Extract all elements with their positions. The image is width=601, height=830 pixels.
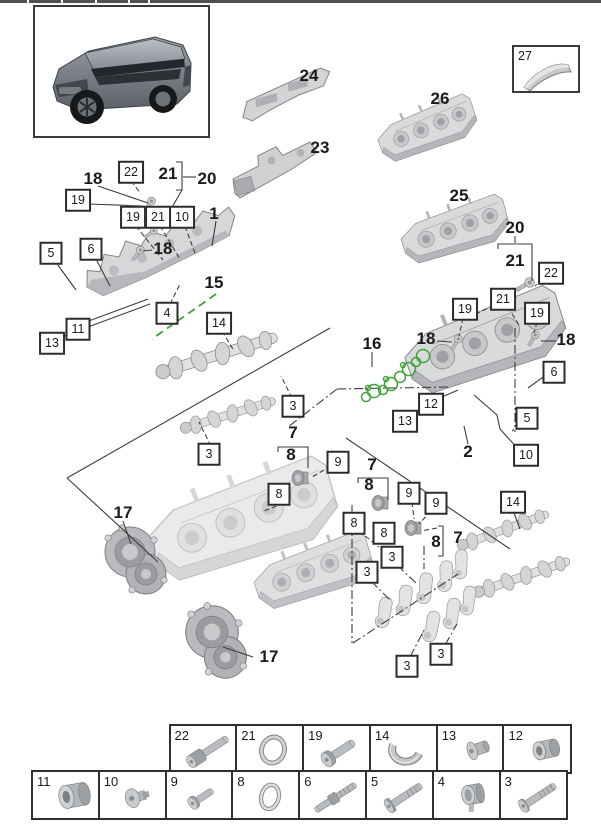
callout-box-5[interactable]: 5	[40, 242, 63, 265]
callout-24[interactable]: 24	[300, 66, 319, 86]
callout-18[interactable]: 18	[417, 329, 436, 349]
callout-box-19[interactable]: 19	[120, 206, 146, 229]
callout-box-3[interactable]: 3	[381, 546, 404, 569]
legend-cell-8[interactable]: 8	[231, 770, 300, 820]
callout-7[interactable]: 7	[288, 423, 297, 443]
parts-legend-row-2: 11 10 9	[31, 770, 565, 820]
callout-box-9[interactable]: 9	[327, 451, 350, 474]
long-bolt-icon	[375, 775, 431, 817]
callout-box-22[interactable]: 22	[538, 262, 564, 285]
callout-box-13[interactable]: 13	[39, 332, 65, 355]
callout-box-22[interactable]: 22	[118, 161, 144, 184]
illustration-camshaft-right-2	[470, 551, 573, 603]
socket-bolt-icon	[179, 729, 235, 771]
illustration-bracket-23	[226, 137, 323, 199]
callout-box-10[interactable]: 10	[513, 444, 539, 467]
sealant-highlights	[152, 294, 430, 402]
sealing-cap-icon	[442, 775, 498, 817]
callout-20[interactable]: 20	[198, 169, 217, 189]
parts-legend-row-1: 22 21 19	[169, 724, 570, 774]
illustration-bearing-1	[292, 471, 308, 486]
illustration-cover-17-lower	[180, 600, 255, 681]
legend-cell-21[interactable]: 21	[235, 724, 304, 774]
callout-26[interactable]: 26	[431, 89, 450, 109]
callout-15[interactable]: 15	[205, 273, 224, 293]
callout-box-21[interactable]: 21	[145, 206, 171, 229]
callout-box-5[interactable]: 5	[516, 407, 539, 430]
callout-17[interactable]: 17	[260, 647, 279, 667]
callout-8[interactable]: 8	[364, 475, 373, 495]
callout-box-12[interactable]: 12	[418, 393, 444, 416]
callout-18[interactable]: 18	[154, 239, 173, 259]
callout-box-3[interactable]: 3	[356, 561, 379, 584]
sealing-plug-icon	[446, 729, 502, 771]
illustration-cam-housing-26	[371, 89, 481, 164]
callout-box-8[interactable]: 8	[343, 512, 366, 535]
legend-cell-12[interactable]: 12	[502, 724, 571, 774]
callout-8[interactable]: 8	[286, 445, 295, 465]
callout-box-11[interactable]: 11	[66, 318, 91, 341]
legend-cell-22[interactable]: 22	[169, 724, 238, 774]
illustration-bearing-3	[405, 521, 421, 536]
illustration-cover-strip-24	[236, 66, 337, 123]
callout-box-19[interactable]: 19	[524, 302, 550, 325]
legend-cell-19[interactable]: 19	[302, 724, 371, 774]
legend-cell-13[interactable]: 13	[436, 724, 505, 774]
callout-7[interactable]: 7	[453, 528, 462, 548]
callout-18[interactable]: 18	[84, 169, 103, 189]
callout-box-3[interactable]: 3	[282, 395, 305, 418]
long-screw-icon	[509, 775, 565, 817]
callout-box-9[interactable]: 9	[398, 482, 421, 505]
callout-box-3[interactable]: 3	[198, 443, 221, 466]
illustration-bearing-2	[372, 496, 388, 511]
short-screw-icon	[175, 775, 231, 817]
callout-18[interactable]: 18	[557, 330, 576, 350]
callout-box-3[interactable]: 3	[430, 643, 453, 666]
o-ring-small-icon	[242, 775, 298, 817]
legend-cell-14[interactable]: 14	[369, 724, 438, 774]
closure-sleeve-icon	[513, 729, 569, 771]
inset-part-box-27[interactable]: 27	[512, 45, 580, 93]
callout-box-14[interactable]: 14	[500, 491, 526, 514]
pan-screw-icon	[312, 729, 368, 771]
callout-box-8[interactable]: 8	[373, 522, 396, 545]
callout-box-6[interactable]: 6	[80, 238, 103, 261]
callout-box-21[interactable]: 21	[490, 288, 516, 311]
callout-25[interactable]: 25	[450, 186, 469, 206]
callout-23[interactable]: 23	[311, 138, 330, 158]
callout-box-4[interactable]: 4	[156, 302, 179, 325]
half-moon-strip-icon	[516, 51, 578, 93]
legend-cell-6[interactable]: 6	[298, 770, 367, 820]
illustration-camshaft-left-2	[178, 391, 279, 439]
callout-box-6[interactable]: 6	[543, 361, 566, 384]
callout-1[interactable]: 1	[209, 204, 218, 224]
callout-box-8[interactable]: 8	[268, 483, 291, 506]
callout-16[interactable]: 16	[363, 334, 382, 354]
legend-cell-5[interactable]: 5	[365, 770, 434, 820]
o-ring-icon	[245, 729, 301, 771]
screw-plug-icon	[108, 775, 164, 817]
legend-cell-10[interactable]: 10	[98, 770, 167, 820]
callout-2[interactable]: 2	[463, 442, 472, 462]
legend-cell-11[interactable]: 11	[31, 770, 100, 820]
callout-box-9[interactable]: 9	[425, 492, 448, 515]
part-illustrations	[76, 66, 573, 681]
callout-box-10[interactable]: 10	[169, 206, 195, 229]
vehicle-illustration	[35, 7, 207, 135]
callout-7[interactable]: 7	[367, 455, 376, 475]
callout-21[interactable]: 21	[506, 251, 525, 271]
callout-box-19[interactable]: 19	[452, 298, 478, 321]
stud-bolt-icon	[308, 775, 364, 817]
callout-17[interactable]: 17	[114, 503, 133, 523]
callout-box-19[interactable]: 19	[65, 189, 91, 212]
vehicle-thumbnail-panel	[33, 5, 210, 138]
callout-box-3[interactable]: 3	[396, 655, 419, 678]
callout-8[interactable]: 8	[431, 532, 440, 552]
legend-cell-4[interactable]: 4	[432, 770, 501, 820]
callout-box-13[interactable]: 13	[392, 410, 418, 433]
legend-cell-9[interactable]: 9	[165, 770, 234, 820]
callout-box-14[interactable]: 14	[206, 312, 232, 335]
closure-sleeve-large-icon	[41, 775, 97, 817]
callout-21[interactable]: 21	[159, 164, 178, 184]
half-moon-seal-icon	[379, 729, 435, 771]
legend-cell-3[interactable]: 3	[499, 770, 568, 820]
callout-20[interactable]: 20	[506, 218, 525, 238]
